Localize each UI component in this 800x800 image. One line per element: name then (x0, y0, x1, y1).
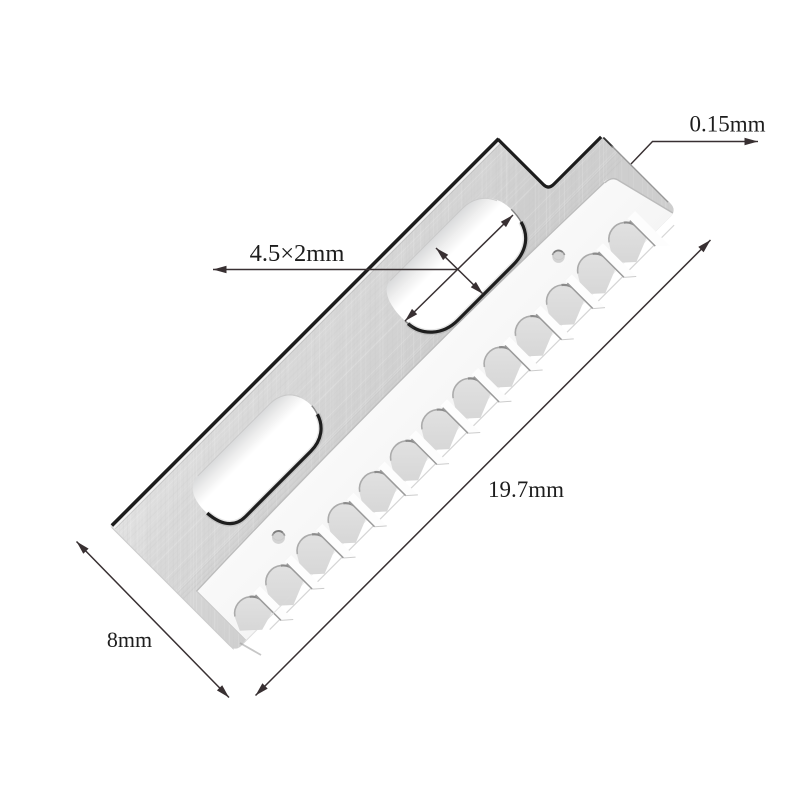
svg-text:19.7mm: 19.7mm (488, 477, 564, 502)
svg-text:0.15mm: 0.15mm (689, 112, 765, 137)
svg-text:8mm: 8mm (107, 627, 152, 652)
svg-text:4.5×2mm: 4.5×2mm (250, 240, 345, 267)
